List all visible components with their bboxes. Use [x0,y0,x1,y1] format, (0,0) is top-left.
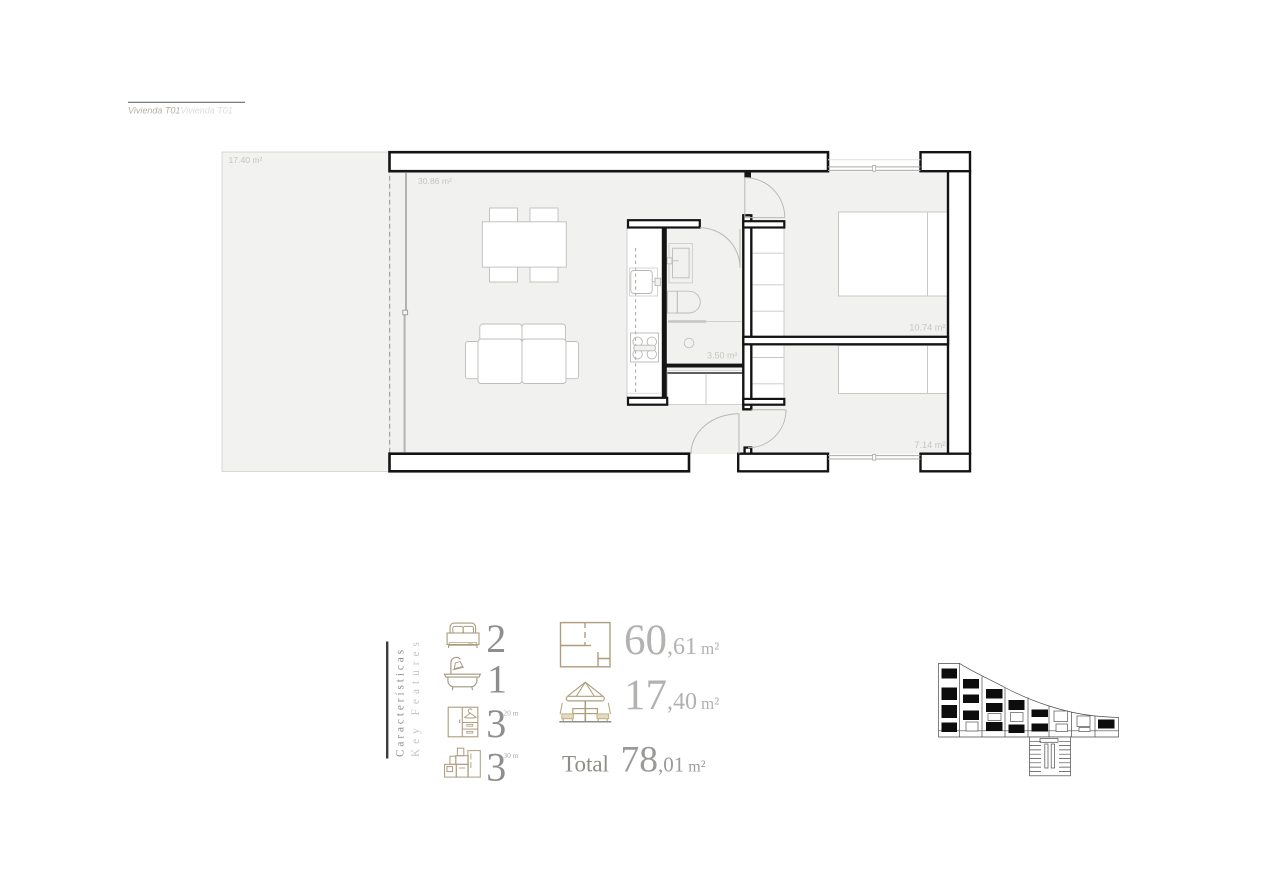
svg-text:.20 m: .20 m [502,709,519,718]
svg-text:17.40 m²: 17.40 m² [229,155,263,165]
svg-text:1: 1 [487,657,507,702]
svg-text:7.14 m²: 7.14 m² [914,440,945,450]
svg-text:Key Features: Key Features [410,637,422,757]
svg-text:30.86 m²: 30.86 m² [418,176,452,186]
svg-text:2: 2 [486,616,506,661]
svg-text:.30 m: .30 m [502,751,519,760]
svg-text:3.50 m²: 3.50 m² [707,351,738,361]
svg-text:Características: Características [395,647,407,757]
svg-text:Vivienda T01Vivienda T01: Vivienda T01Vivienda T01 [128,106,233,116]
svg-text:10.74 m²: 10.74 m² [909,323,945,333]
svg-text:Total: Total [562,752,609,777]
